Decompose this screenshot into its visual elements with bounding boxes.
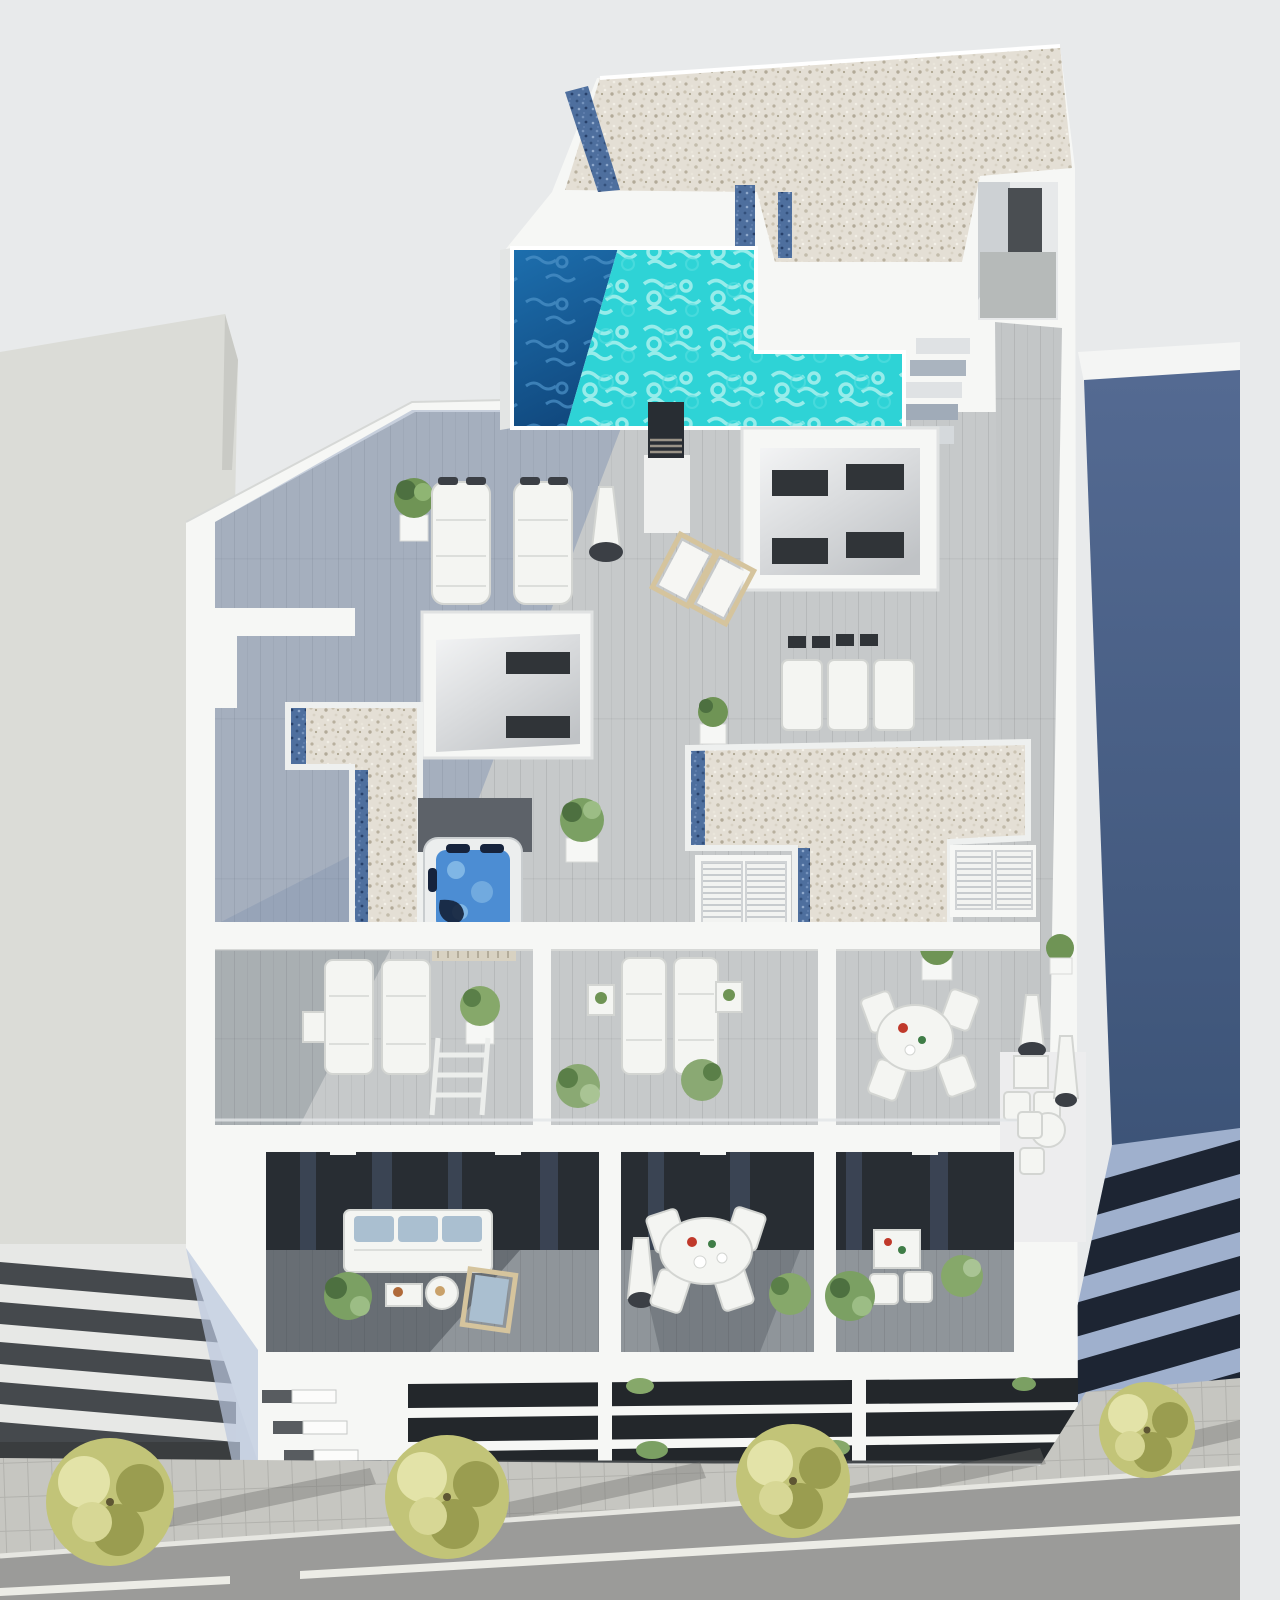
balcony-plant-tuft [1012,1377,1036,1391]
louver-door [956,851,992,909]
lightwell-window [506,716,570,738]
shutter-room-east [950,845,1036,917]
padded-lounger [514,477,572,604]
flat-lounger [828,660,868,730]
round-dining-table [877,1005,953,1071]
lightwell-west [422,612,592,758]
potted-plant [825,1271,875,1321]
potted-plant [1046,934,1074,974]
sofa [344,1210,492,1272]
glass-band-rows [408,1374,1078,1464]
stairwell-floor [980,252,1056,318]
stairwell [978,182,1058,320]
gravel-blue-strip [778,192,792,258]
shutter-room-west [695,855,791,931]
balcony-divider-wall [599,1148,621,1352]
balcony-plant-tuft [636,1441,668,1459]
street-tree [385,1435,509,1559]
chair [1020,1148,1044,1174]
slot-window [262,1390,336,1403]
chair [1018,1112,1042,1138]
louver-door [702,862,742,924]
potted-plant [698,697,728,744]
flat-lounger [874,660,914,730]
sun-lounger [622,958,666,1074]
flat-lounger [782,660,822,730]
potted-plant [560,798,604,862]
side-table [1014,1056,1048,1088]
lightwell-window [846,532,904,558]
terrace-corner-wall [215,608,237,708]
sun-lounger [325,960,373,1074]
lightwell-window [772,470,828,496]
hot-tub-headrest [428,868,437,892]
lightwell-main [742,428,938,590]
lightwell-window [772,538,828,564]
divider-wall [818,948,836,1125]
bush [556,1064,600,1108]
lightwell-window [506,652,570,674]
potted-plant [460,986,500,1044]
balcony-plant-tuft [626,1378,654,1394]
lightwell-window [846,464,904,490]
potted-plant [941,1255,983,1297]
stairwell-door [1008,188,1042,254]
balcony-divider-wall [814,1148,836,1352]
gravel-blue-strip [690,750,705,846]
potted-plant [394,478,434,541]
potted-plant [769,1273,811,1315]
slot-window [273,1421,347,1434]
chimney [644,402,690,533]
gravel-blue-strip [290,708,306,765]
street-tree [736,1424,850,1538]
street-tree [1099,1382,1195,1478]
architectural-rendering [0,0,1280,1600]
bush [681,1059,723,1101]
sun-lounger [382,960,430,1074]
coffee-table [386,1284,422,1306]
square-table [874,1230,920,1268]
mullion [852,1374,866,1464]
mullion [598,1378,612,1464]
street-tree [46,1438,174,1566]
divider-wall [533,948,551,1125]
louver-door [746,862,786,924]
mid-parapet [215,922,1040,950]
hot-tub-headrest [446,844,470,853]
louver-door [996,851,1032,909]
hot-tub-headrest [480,844,504,853]
potted-plant [324,1272,372,1320]
round-dining-table [660,1218,752,1284]
chair [904,1272,932,1302]
padded-lounger [432,477,490,604]
sun-lounger [674,958,718,1074]
